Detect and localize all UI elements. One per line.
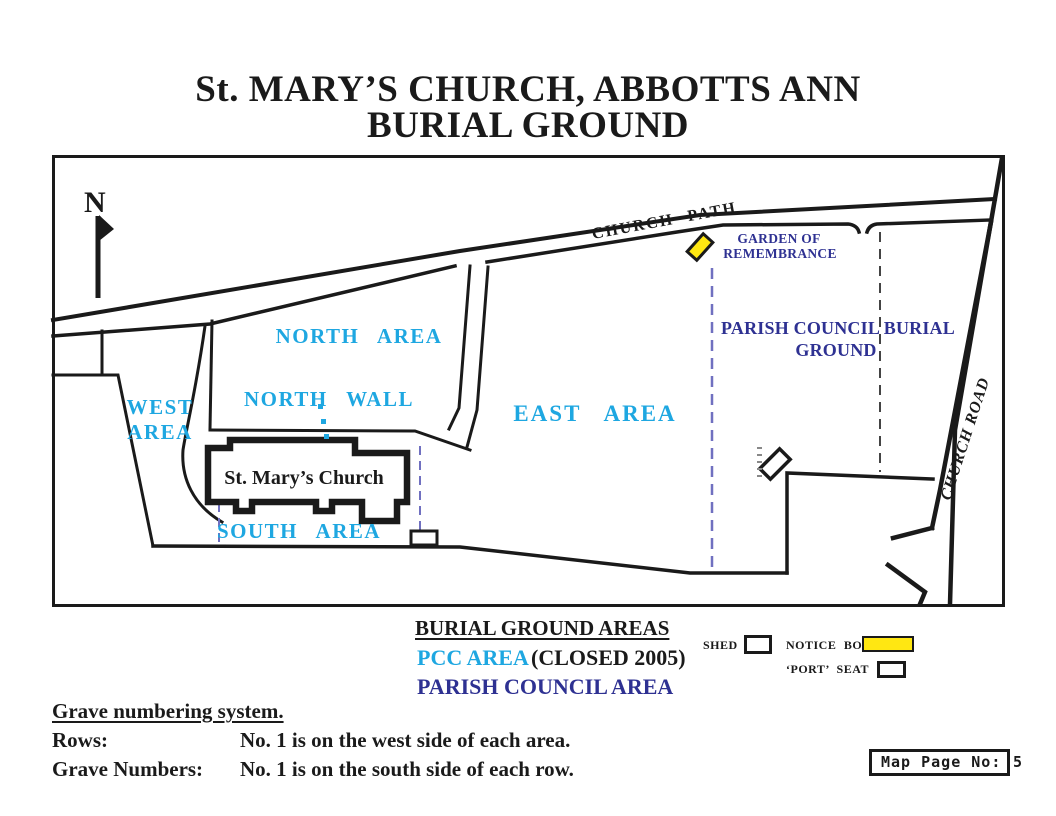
- north-arrow-icon: [98, 215, 114, 298]
- north-wall-label: NORTH WALL: [244, 387, 414, 411]
- grave-numbers-description: No. 1 is on the south side of each row.: [240, 757, 574, 782]
- legend-port-seat-swatch: [877, 661, 906, 678]
- garden-boundary-east-of-gate: [867, 220, 990, 232]
- south-boundary: [153, 546, 787, 573]
- church-name-label: St. Mary’s Church: [224, 467, 383, 489]
- page-title-line1: St. MARY’S CHURCH, ABBOTTS ANN: [0, 72, 1056, 108]
- east-area-label: EAST AREA: [513, 401, 676, 426]
- north-path-west-edge: [449, 266, 470, 429]
- north-area-label: NORTH AREA: [276, 324, 443, 348]
- church-road-left-edge: [932, 222, 991, 528]
- legend-notice-board-swatch: [862, 636, 914, 652]
- map-page-number-value: 5: [1013, 753, 1022, 771]
- legend-pcc-closed-note: (CLOSED 2005): [531, 645, 686, 671]
- rows-description: No. 1 is on the west side of each area.: [240, 728, 570, 753]
- church-road-label: CHURCH ROAD: [938, 375, 994, 502]
- north-area-west-boundary: [210, 321, 212, 429]
- burial-ground-map-page: { "title": { "line1": "St. MARY\u2019S C…: [0, 0, 1056, 816]
- parish-council-label-line1: PARISH COUNCIL BURIAL: [721, 318, 955, 338]
- parish-council-label-line2: GROUND: [795, 340, 876, 360]
- south-area-label: SOUTH AREA: [217, 519, 381, 543]
- legend-port-seat-label: ‘PORT’ SEAT: [786, 662, 869, 677]
- north-path-east-edge: [467, 267, 488, 447]
- garden-of-remembrance-label-line1: GARDEN OF: [737, 231, 820, 246]
- rows-label: Rows:: [52, 728, 108, 753]
- page-title: St. MARY’S CHURCH, ABBOTTS ANN BURIAL GR…: [0, 72, 1056, 144]
- west-area-label-line2: AREA: [127, 420, 193, 444]
- notice-board-marker: [687, 234, 713, 261]
- road-junction-lower-arm: [888, 565, 925, 604]
- grave-numbers-label: Grave Numbers:: [52, 757, 203, 782]
- legend-shed-swatch: [744, 635, 772, 654]
- church-path-label: CHURCH PATH: [591, 199, 739, 243]
- garden-of-remembrance-label-line2: REMEMBRANCE: [723, 246, 837, 261]
- road-junction-upper-arm: [893, 528, 932, 538]
- legend-parish-council-area: PARISH COUNCIL AREA: [417, 674, 673, 700]
- legend-heading: BURIAL GROUND AREAS: [415, 616, 669, 641]
- west-area-label-line1: WEST: [127, 395, 194, 419]
- page-title-line2: BURIAL GROUND: [0, 108, 1056, 144]
- grave-numbering-heading: Grave numbering system.: [52, 699, 284, 724]
- shed-marker: [411, 531, 437, 545]
- church-path-upper-edge: [53, 199, 995, 320]
- legend-shed-label: SHED: [703, 638, 738, 653]
- legend-pcc-area: PCC AREA: [417, 645, 529, 671]
- map-page-number-box: Map Page No:: [869, 749, 1010, 776]
- burial-ground-map: N CHURCH PATH GARDEN OF REMEMBRANCE NORT…: [50, 153, 1008, 610]
- north-indicator-label: N: [84, 186, 106, 219]
- parish-council-boundary: [787, 473, 933, 573]
